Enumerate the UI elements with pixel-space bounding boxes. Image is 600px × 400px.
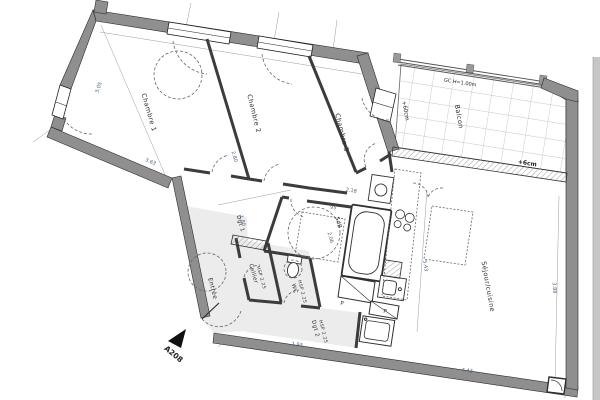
door-arc-chambre3 — [364, 143, 377, 167]
door-arc-sdb — [291, 199, 305, 217]
window-left — [52, 85, 71, 119]
dim-sdb-width: 2.18 — [345, 187, 357, 195]
wall-diagonal — [47, 127, 172, 188]
room-label-sdb: SdB — [334, 216, 343, 229]
wall-left-upper — [60, 10, 96, 89]
window-arc-1 — [173, 41, 207, 74]
dim-chambre1-width: 3.63 — [144, 157, 157, 167]
dim-sejour-right: 3.88 — [551, 282, 558, 294]
wall-top-corner-stub — [94, 0, 108, 14]
apartment-number: A208 — [162, 344, 184, 365]
dim-sdb-small: 95 — [330, 205, 337, 212]
corner-detail — [547, 377, 566, 394]
cooktop — [393, 209, 415, 232]
room-label-sejour: Séjour/cuisine — [480, 261, 497, 313]
turning-circle-chambre1 — [154, 51, 202, 99]
washbasin — [368, 175, 394, 204]
door-arc-chambre2 — [264, 164, 280, 181]
sejour-door-arcs — [413, 183, 443, 197]
kitchen-sink — [378, 275, 407, 301]
door-arc-chambre1 — [212, 155, 229, 172]
floor-plan-drawing: Chambre 1 Chambre 2 Chambre 3 Balcon Séj… — [0, 0, 600, 400]
placard-label-1: P — [340, 301, 345, 307]
dim-chambre1-depth: 3.05 — [94, 81, 103, 94]
room-label-chambre2: Chambre 2 — [245, 93, 262, 133]
window-arc-left — [64, 119, 92, 134]
floor-plan-sheet: Chambre 1 Chambre 2 Chambre 3 Balcon Séj… — [0, 0, 600, 400]
room-label-chambre3: Chambre 3 — [333, 112, 350, 152]
floor-tint — [180, 205, 361, 348]
washing-machine — [359, 316, 394, 346]
windows — [52, 22, 396, 122]
adjacent-sheet-strip — [593, 57, 600, 400]
wall-bottom — [213, 333, 578, 397]
dim-sdb-depth: 2.06 — [326, 232, 335, 244]
ceiling-dashed-rect — [424, 206, 473, 265]
room-label-chambre1: Chambre 1 — [140, 92, 159, 132]
wall-right — [566, 97, 578, 390]
dim-sejour-depth: 5.43 — [421, 260, 428, 272]
dim-chambre2-width: 2.80 — [230, 151, 239, 163]
